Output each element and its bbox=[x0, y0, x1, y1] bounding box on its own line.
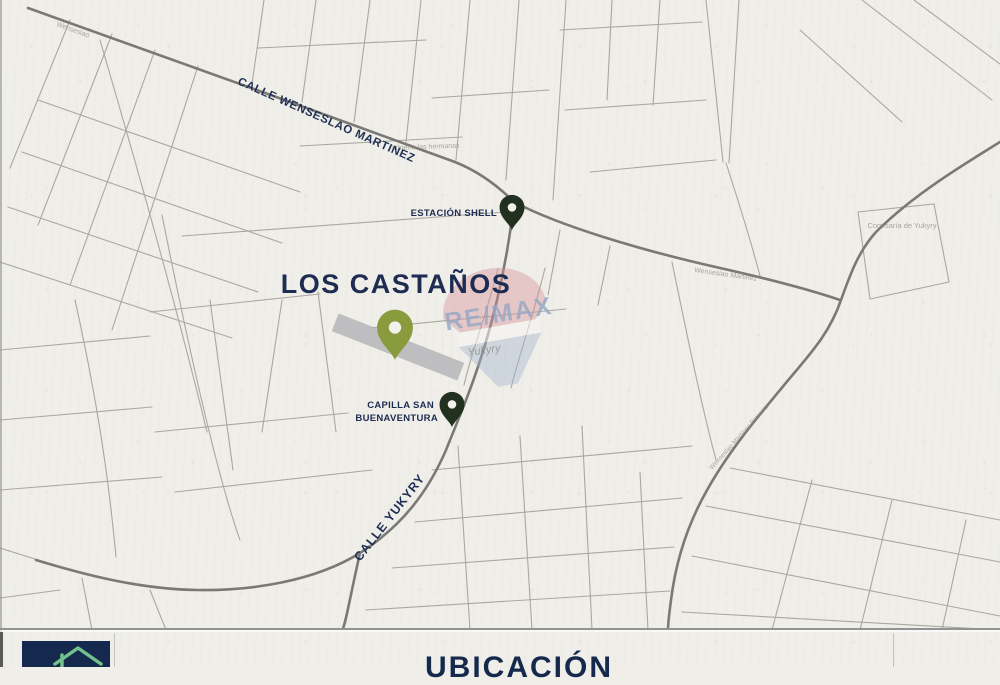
road-yukyry bbox=[36, 202, 514, 590]
poi-label-capilla-line2: BUENAVENTURA bbox=[355, 413, 438, 424]
capilla-pin-icon bbox=[440, 392, 465, 427]
road-wenseslao bbox=[28, 8, 514, 202]
poi-label-shell: ESTACIÓN SHELL bbox=[411, 207, 497, 219]
map-svg: RE/MAX Wenseslao Librería las hermanas W… bbox=[0, 0, 1000, 630]
road-yukyry-south bbox=[342, 553, 360, 630]
road-diagonal-east bbox=[668, 142, 1000, 630]
footer-bar: UBICACIÓN bbox=[0, 630, 1000, 667]
road-label-wenseslao: CALLE WENSESLAO MARTINEZ bbox=[236, 76, 417, 165]
property-title: LOS CASTAÑOS bbox=[281, 268, 512, 299]
road-label-diagonal-faded: Wenseslao Martinez Potrerito bbox=[708, 403, 770, 471]
poi-label-capilla-line1: CAPILLA SAN bbox=[367, 400, 434, 411]
shell-pin-icon bbox=[500, 195, 525, 230]
footer-divider bbox=[0, 628, 1000, 630]
footer-left-edge bbox=[0, 632, 3, 667]
poi-label-comisaria: Comisaría de Yukyry bbox=[867, 221, 936, 230]
location-map: RE/MAX Wenseslao Librería las hermanas W… bbox=[0, 0, 1000, 630]
footer-section-title: UBICACIÓN bbox=[19, 651, 1000, 685]
road-label-yukyry: CALLE YUKYRY bbox=[351, 472, 427, 564]
